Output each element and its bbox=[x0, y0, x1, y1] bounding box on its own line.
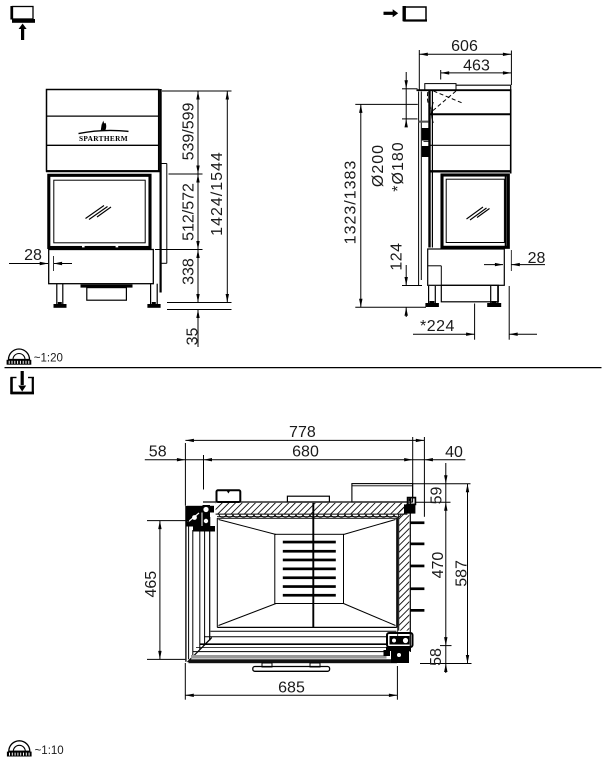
svg-text:40: 40 bbox=[445, 444, 463, 461]
svg-text:~1:20: ~1:20 bbox=[34, 353, 63, 365]
svg-text:Ø200: Ø200 bbox=[370, 144, 387, 187]
svg-text:512/572: 512/572 bbox=[181, 183, 198, 241]
svg-text:59: 59 bbox=[429, 487, 446, 505]
svg-text:778: 778 bbox=[289, 424, 316, 441]
svg-text:539/599: 539/599 bbox=[181, 102, 198, 160]
svg-text:35: 35 bbox=[185, 328, 202, 346]
svg-text:463: 463 bbox=[463, 57, 490, 74]
svg-text:58: 58 bbox=[149, 444, 167, 461]
svg-text:~1:10: ~1:10 bbox=[35, 745, 64, 757]
svg-text:465: 465 bbox=[143, 571, 160, 598]
svg-text:28: 28 bbox=[24, 247, 42, 264]
svg-text:606: 606 bbox=[451, 38, 478, 55]
svg-text:*Ø180: *Ø180 bbox=[390, 141, 407, 191]
svg-text:1424/1544: 1424/1544 bbox=[209, 151, 226, 236]
svg-text:124: 124 bbox=[389, 242, 406, 270]
svg-text:SPARTHERM: SPARTHERM bbox=[79, 134, 128, 143]
svg-text:*224: *224 bbox=[420, 318, 455, 335]
svg-text:587: 587 bbox=[453, 560, 470, 587]
svg-text:1323/1383: 1323/1383 bbox=[343, 160, 360, 245]
svg-text:58: 58 bbox=[428, 648, 445, 666]
svg-text:338: 338 bbox=[181, 258, 198, 285]
svg-text:470: 470 bbox=[430, 552, 447, 579]
svg-text:685: 685 bbox=[278, 680, 305, 697]
svg-text:680: 680 bbox=[292, 443, 319, 460]
